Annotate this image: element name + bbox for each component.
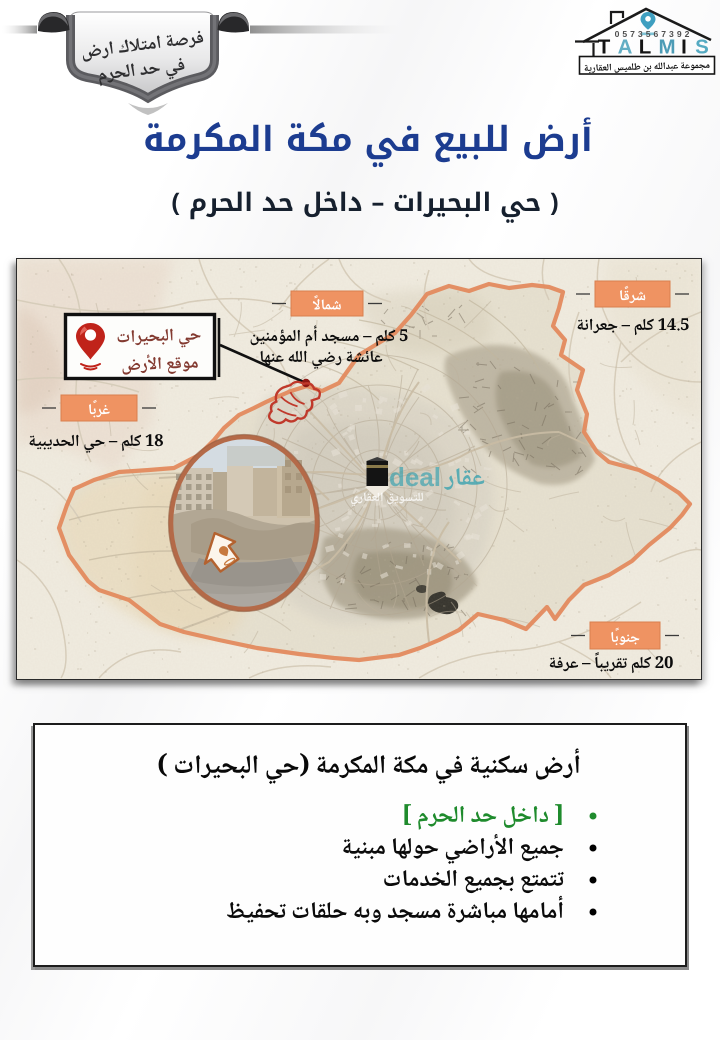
svg-text:A: A — [618, 36, 633, 59]
svg-text:deal: deal — [389, 462, 441, 492]
svg-text:L: L — [639, 36, 652, 59]
svg-text:M: M — [658, 36, 675, 59]
svg-text:T: T — [598, 36, 611, 59]
svg-text:I: I — [681, 36, 687, 59]
svg-text:S: S — [695, 36, 709, 59]
